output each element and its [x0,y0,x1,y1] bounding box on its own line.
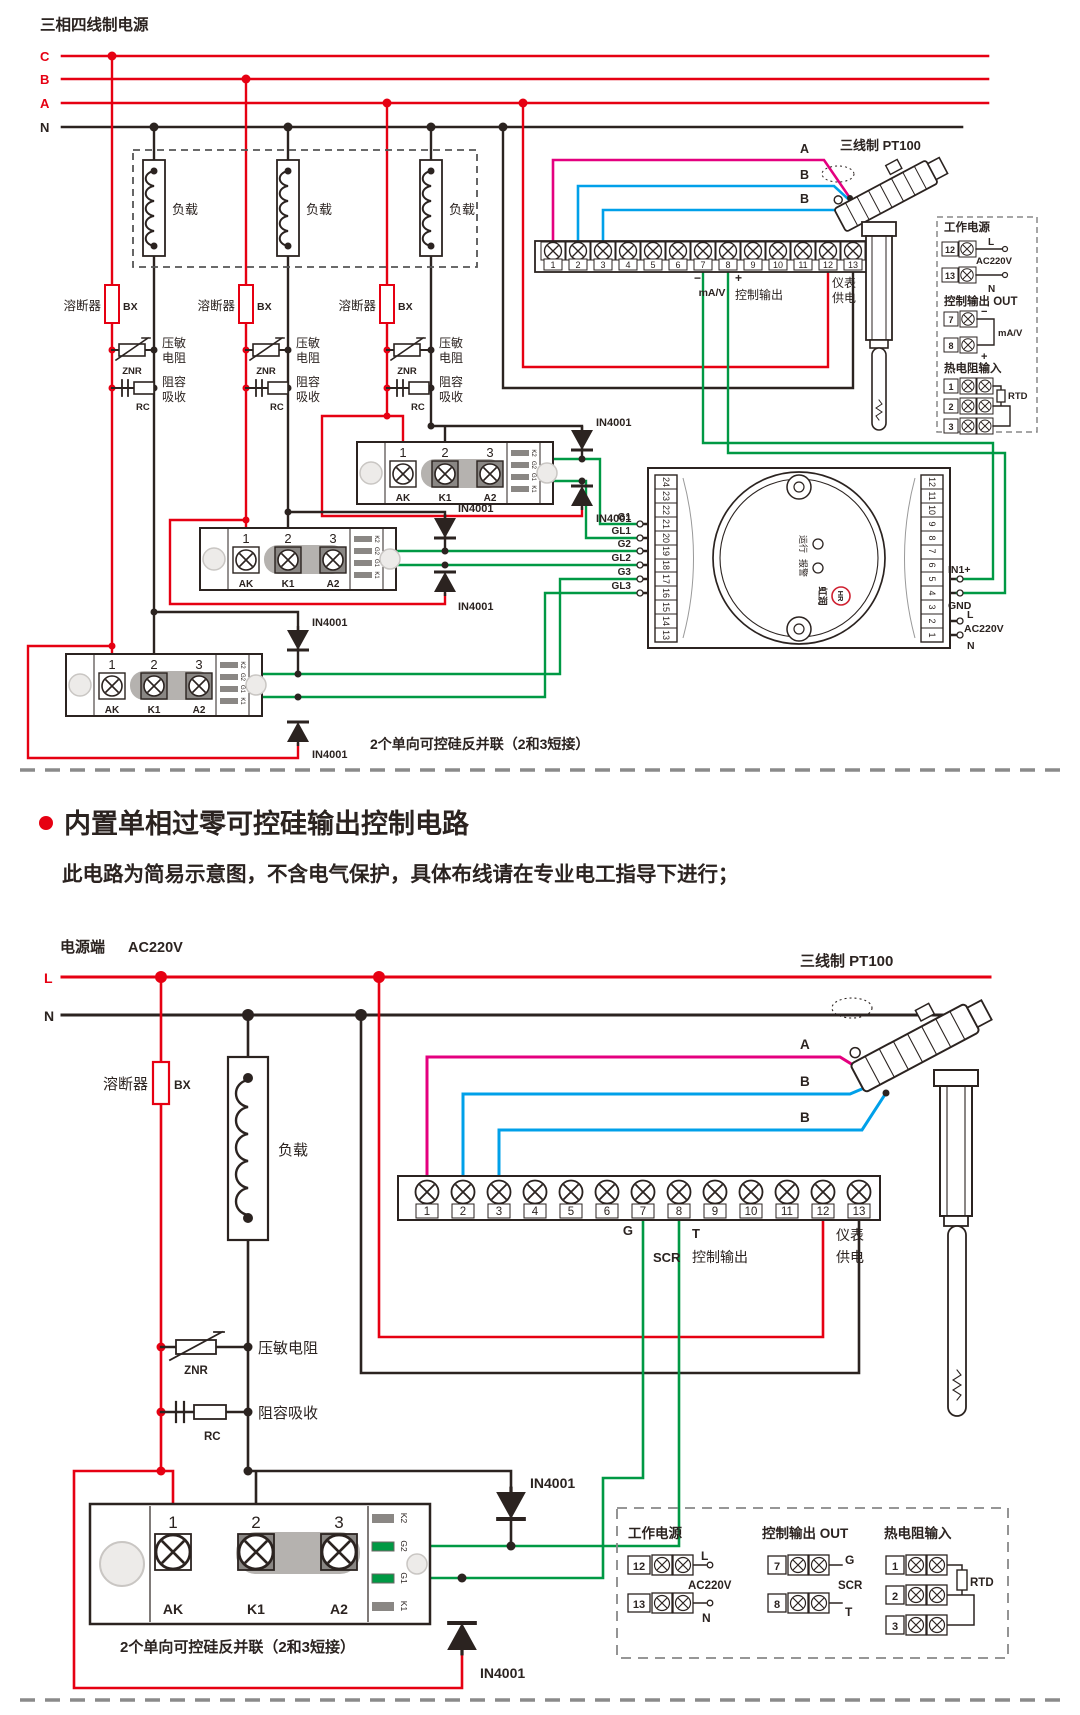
legend-l: L [701,1549,708,1563]
diode-label: IN4001 [312,749,347,761]
controller-indicator-1: 运行 [798,535,809,553]
load-3: 负载 [420,160,475,256]
panel-minus: − [981,306,987,318]
svg-text:22: 22 [661,505,671,515]
panel-n12: 12 [945,245,955,255]
controller-logo: HR [836,591,845,602]
label-l: L [44,970,53,986]
legend-n1: 1 [892,1561,898,1573]
bottom-caption: 2个单向可控硅反并联（2和3短接） [120,1638,355,1656]
bottom-module-side-g1: G1 [399,1572,409,1584]
strip-num: 9 [750,260,755,270]
legend-rtd-title: 热电阻输入 [884,1525,952,1541]
svg-text:14: 14 [661,616,671,626]
svg-text:23: 23 [661,491,671,501]
label-meter-2: 供电 [832,291,856,305]
strip-num: 11 [798,260,807,270]
top-title: 三相四线制电源 [40,15,149,34]
label-sensor-bottom: 三线制 PT100 [800,952,893,970]
label-ctrl-l: L [967,609,974,621]
strip-num: 4 [532,1206,539,1218]
svg-text:15: 15 [661,602,671,612]
code-fuse-3: BX [398,301,413,313]
diode-label: IN4001 [458,601,493,613]
label-meter-1: 仪表 [832,276,856,290]
label-znr-3b: 电阻 [439,351,463,365]
controller-device: 24 23 22 21 20 19 18 17 16 15 14 13 12 1… [612,468,1004,652]
svg-text:1: 1 [927,632,937,637]
bottom-terminal-strip: 1 2 3 4 5 6 7 8 9 10 11 12 13 [398,1176,880,1220]
controller-indicator-2: 报警 [798,559,809,577]
gate-label-gl3: GL3 [612,581,632,592]
diode-label: IN4001 [596,417,631,429]
bottom-module-pad-ak: AK [163,1601,183,1617]
legend-n13: 13 [633,1599,645,1611]
legend-n12: 12 [633,1561,645,1573]
strip-num: 13 [853,1206,866,1218]
scr-module-2 [200,528,400,590]
controller-brand: 虹润 [816,586,828,605]
panel-l: L [988,237,994,248]
label-ctrl-out: 控制输出 [735,287,783,302]
label-load-1: 负载 [172,202,198,217]
label-phase-c: C [40,49,50,64]
svg-text:5: 5 [927,576,937,581]
gate-label-gl2: GL2 [612,553,632,564]
svg-text:4: 4 [927,590,937,595]
strip-num: 8 [676,1206,682,1218]
bottom-module-terminal-2: 2 [251,1513,260,1532]
section-subheading: 此电路为简易示意图，不含电气保护，具体布线请在专业电工指导下进行； [62,862,739,886]
svg-text:10: 10 [927,505,937,515]
bottom-module-pad-k1: K1 [247,1601,265,1617]
panel-unit: mA/V [998,328,1023,339]
bottom-diode-label-1: IN4001 [530,1475,575,1491]
strip-num: 7 [700,260,705,270]
label-minus: − [694,271,701,285]
label-rc-3b: 吸收 [439,390,463,404]
bottom-diagram: 电源端 AC220V L N A B B 溶断器 BX 负载 ZNR 压敏电阻 [44,938,1008,1688]
label-fuse-2: 溶断器 [197,298,235,313]
legend-n8: 8 [774,1599,780,1611]
strip-num: 4 [625,260,630,270]
label-rc-2b: 吸收 [296,390,320,404]
controller-right-wire-terminals: IN1+ GND L AC220V N [948,564,1004,652]
strip-num: 1 [550,260,555,270]
panel-n: N [988,284,995,295]
code-rc-2: RC [270,402,284,413]
scr-module-bottom: 1 2 3 AK K1 A2 K2 G2 G1 K1 [90,1504,430,1624]
code-fuse-1: BX [123,301,138,313]
code-fuse-2: BX [257,301,272,313]
label-source: 电源端 [60,938,105,956]
phase-lines-cba [62,56,988,103]
diode-label: IN4001 [312,617,347,629]
strip-num: 9 [712,1206,718,1218]
label-t: T [692,1226,700,1241]
label-bottom-load: 负载 [278,1142,308,1159]
label-znr-2b: 电阻 [296,351,320,365]
strip-num: 12 [817,1206,830,1218]
bottom-znr-rc: ZNR 压敏电阻 RC 阻容吸收 [161,1332,318,1443]
strip-num: 7 [640,1206,646,1218]
legend-n7: 7 [774,1561,780,1573]
strip-num: 12 [823,260,833,270]
panel-rtd: RTD [1008,391,1028,402]
label-bottom-rc: 阻容吸收 [258,1405,318,1422]
label-phase-n: N [40,120,49,135]
strip-num: 3 [496,1206,502,1218]
legend-n: N [702,1611,711,1625]
bottom-wire-label-b2: B [800,1110,810,1125]
label-n: N [44,1008,54,1024]
label-in1: IN1+ [948,564,970,576]
label-scr: SCR [653,1250,681,1265]
label-rc-3a: 阻容 [439,374,463,389]
bottom-module-side-g2: G2 [399,1540,409,1552]
svg-text:9: 9 [927,521,937,526]
strip-num: 1 [424,1206,430,1218]
svg-text:24: 24 [661,477,671,487]
svg-text:19: 19 [661,546,671,556]
panel-power-title: 工作电源 [944,220,990,234]
code-znr-3: ZNR [397,366,417,377]
strip-num: 3 [600,260,605,270]
label-rc-2a: 阻容 [296,374,320,389]
label-ctrl-ac: AC220V [964,623,1004,635]
svg-text:8: 8 [927,535,937,540]
section-heading: 内置单相过零可控硅输出控制电路 [64,808,470,839]
strip-num: 5 [650,260,655,270]
code-bottom-fuse: BX [174,1078,191,1092]
panel-n13: 13 [945,271,955,281]
top-wires-b [578,186,866,241]
panel-n7: 7 [948,315,953,325]
top-wire-label-b1: B [800,168,809,182]
strip-num: 8 [725,260,730,270]
label-znr-1a: 压敏 [162,335,186,350]
load-2: 负载 [277,160,332,256]
gate-label-gl1: GL1 [612,526,632,537]
strip-num: 11 [781,1206,793,1218]
legend-t: T [845,1605,853,1619]
bottom-load: 负载 [228,1057,308,1240]
bottom-module-terminal-3: 3 [334,1513,343,1532]
svg-text:3: 3 [927,604,937,609]
label-bottom-znr: 压敏电阻 [258,1340,318,1357]
legend-n3: 3 [892,1621,898,1633]
label-fuse-3: 溶断器 [338,298,376,313]
code-znr-1: ZNR [122,366,142,377]
legend-scr: SCR [838,1580,863,1592]
code-bottom-rc: RC [204,1431,221,1443]
strip-num: 2 [460,1206,466,1218]
top-caption: 2个单向可控硅反并联（2和3短接） [370,736,589,752]
label-ctrl-n: N [967,640,975,652]
strip-num: 6 [604,1206,610,1218]
svg-text:21: 21 [661,519,671,529]
code-rc-3: RC [411,402,425,413]
panel-n2: 2 [948,402,953,412]
code-rc-1: RC [136,402,150,413]
scr-module-1 [66,654,266,716]
panel-n8: 8 [948,341,953,351]
label-source-value: AC220V [128,940,183,956]
middle-text: 内置单相过零可控硅输出控制电路 此电路为简易示意图，不含电气保护，具体布线请在专… [39,808,739,886]
strip-num: 5 [568,1206,574,1218]
svg-text:17: 17 [661,574,671,584]
label-rc-1b: 吸收 [162,390,186,404]
bottom-legend: 工作电源 12 L AC220V 13 N 控制输出 OUT 7 G SCR 8… [617,1508,1008,1658]
strip-num: 10 [773,260,783,270]
label-bottom-meter-1: 仪表 [836,1227,864,1243]
gate-label-g1: G1 [618,512,632,523]
svg-text:11: 11 [927,491,937,500]
fuse-1: 溶断器 BX [63,285,137,323]
bottom-wire-label-a: A [800,1037,810,1052]
svg-text:18: 18 [661,560,671,570]
panel-ac: AC220V [976,256,1013,267]
label-load-2: 负载 [306,202,332,217]
bottom-module-pad-a2: A2 [330,1601,348,1617]
code-bottom-znr: ZNR [184,1365,208,1377]
legend-n2: 2 [892,1591,898,1603]
label-bottom-fuse: 溶断器 [103,1076,148,1093]
gate-label-g2: G2 [618,539,632,550]
top-wire-label-b2: B [800,192,809,206]
strip-num: 2 [575,260,580,270]
scr-module-3 [357,442,557,504]
diode-label: IN4001 [458,503,493,515]
legend-out-title: 控制输出 OUT [762,1525,849,1541]
top-diagram: 三相四线制电源 C B A N A B B 负载 [28,15,1037,761]
legend-power-title: 工作电源 [628,1525,682,1541]
label-phase-a: A [40,96,50,111]
svg-text:16: 16 [661,588,671,598]
label-rc-1a: 阻容 [162,374,186,389]
label-znr-3a: 压敏 [439,335,463,350]
bottom-module-side-k2: K2 [399,1513,409,1524]
label-phase-b: B [40,72,49,87]
code-znr-2: ZNR [256,366,276,377]
load-1: 负载 [143,160,198,256]
top-wire-label-a: A [800,142,809,156]
legend-g: G [845,1553,854,1567]
strip-num: 6 [675,260,680,270]
svg-text:20: 20 [661,533,671,543]
svg-text:6: 6 [927,562,937,567]
label-unit: mA/V [699,287,726,299]
label-bottom-meter-2: 供电 [836,1249,864,1265]
strip-num: 13 [848,260,858,270]
label-sensor-top: 三线制 PT100 [840,138,921,153]
panel-n1: 1 [948,382,953,392]
fuse-2: 溶断器 BX [197,285,271,323]
label-znr-1b: 电阻 [162,351,186,365]
label-load-3: 负载 [449,202,475,217]
svg-text:7: 7 [927,548,937,553]
panel-plus: + [981,351,987,363]
fuse-3: 溶断器 BX [338,285,412,323]
label-znr-2a: 压敏 [296,335,320,350]
bottom-module-side-k1: K1 [399,1601,409,1612]
gate-label-g3: G3 [618,567,632,578]
wiring-diagram: 1 2 3 AK K1 A2 K2 G2 G1 K1 三相四线制电源 C B A… [0,0,1080,1710]
label-g: G [623,1223,633,1238]
svg-text:13: 13 [661,630,671,640]
svg-text:2: 2 [927,618,937,623]
top-legend-panel: 工作电源 12 L AC220V 13 N 控制输出 OUT 7 − mA/V … [937,217,1037,434]
legend-rtd: RTD [970,1577,994,1589]
bottom-diode-label-2: IN4001 [480,1665,525,1681]
bottom-fuse [153,1062,169,1104]
top-terminal-strip: 1 2 3 4 5 6 7 8 9 10 11 12 13 [535,241,880,272]
legend-ac: AC220V [688,1580,732,1592]
panel-n3: 3 [948,422,953,432]
bottom-red-dots [155,971,385,1476]
label-bottom-ctrl-out: 控制输出 [692,1249,748,1265]
strip-num: 10 [745,1206,758,1218]
bullet-icon [39,816,53,830]
bottom-module-terminal-1: 1 [168,1513,177,1532]
label-fuse-1: 溶断器 [63,298,101,313]
svg-text:12: 12 [927,477,937,487]
panel-rtd-title: 热电阻输入 [944,361,1002,375]
bottom-wire-label-b1: B [800,1074,810,1089]
label-plus: + [735,271,742,285]
